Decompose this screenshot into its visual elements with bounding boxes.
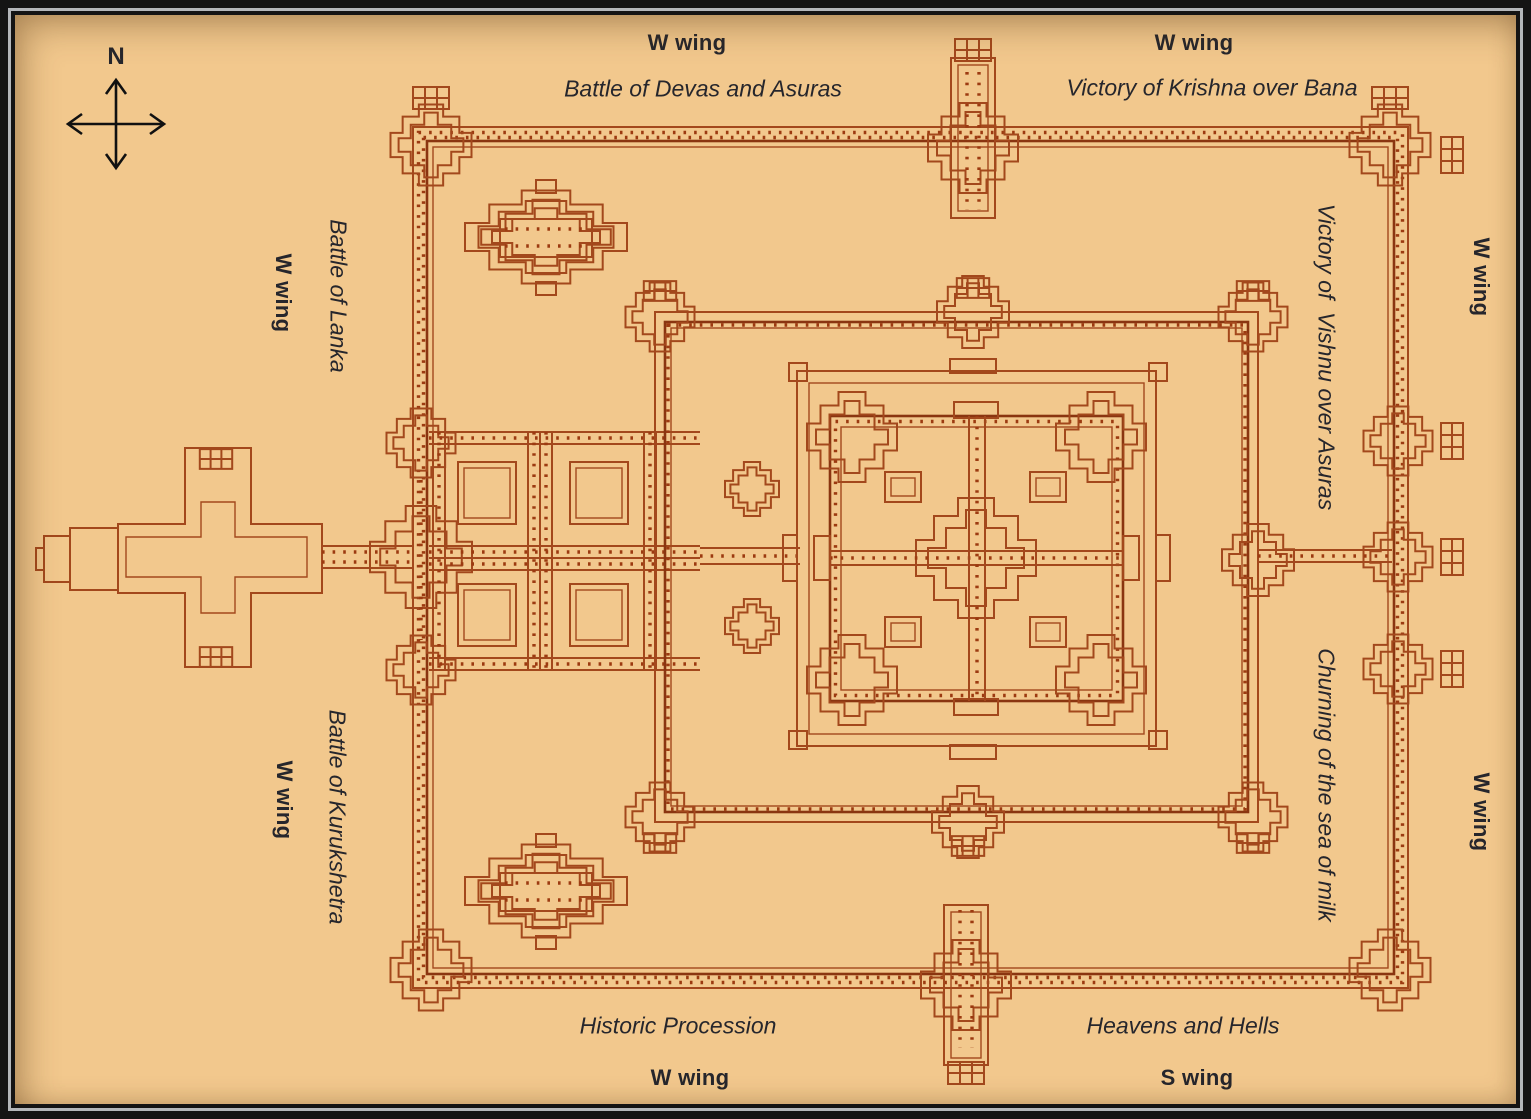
label-ne-wing: W wing (1155, 32, 1234, 54)
angkor-wat-plan-figure: N W wing Battle of Devas and Asuras W wi… (0, 0, 1531, 1119)
label-e-upper-wing: W wing (1470, 238, 1492, 317)
south-library (465, 834, 627, 949)
label-sw-relief: Historic Procession (580, 1015, 777, 1038)
label-se-wing: S wing (1161, 1067, 1234, 1089)
label-e-lower-relief: Churning of the sea of milk (1315, 648, 1338, 922)
west-terrace (36, 448, 413, 667)
label-w-upper-relief: Battle of Lanka (327, 219, 350, 372)
label-e-lower-wing: W wing (1470, 773, 1492, 852)
label-nw-wing: W wing (648, 32, 727, 54)
label-ne-relief: Victory of Krishna over Bana (1066, 77, 1357, 100)
cruciform-cloister (429, 432, 700, 670)
label-w-upper-wing: W wing (272, 254, 294, 333)
inner-sanctuary (783, 359, 1170, 759)
label-se-relief: Heavens and Hells (1086, 1015, 1279, 1038)
label-nw-relief: Battle of Devas and Asuras (564, 78, 842, 101)
temple-floor-plan (0, 0, 1531, 1119)
label-w-lower-relief: Battle of Kurukshetra (326, 710, 349, 925)
label-w-lower-wing: W wing (273, 761, 295, 840)
compass-north-label: N (107, 45, 124, 69)
label-e-upper-relief: Victory of Vishnu over Asuras (1315, 204, 1338, 510)
label-sw-wing: W wing (651, 1067, 730, 1089)
compass-rose-icon (68, 80, 164, 168)
north-library (465, 180, 627, 295)
